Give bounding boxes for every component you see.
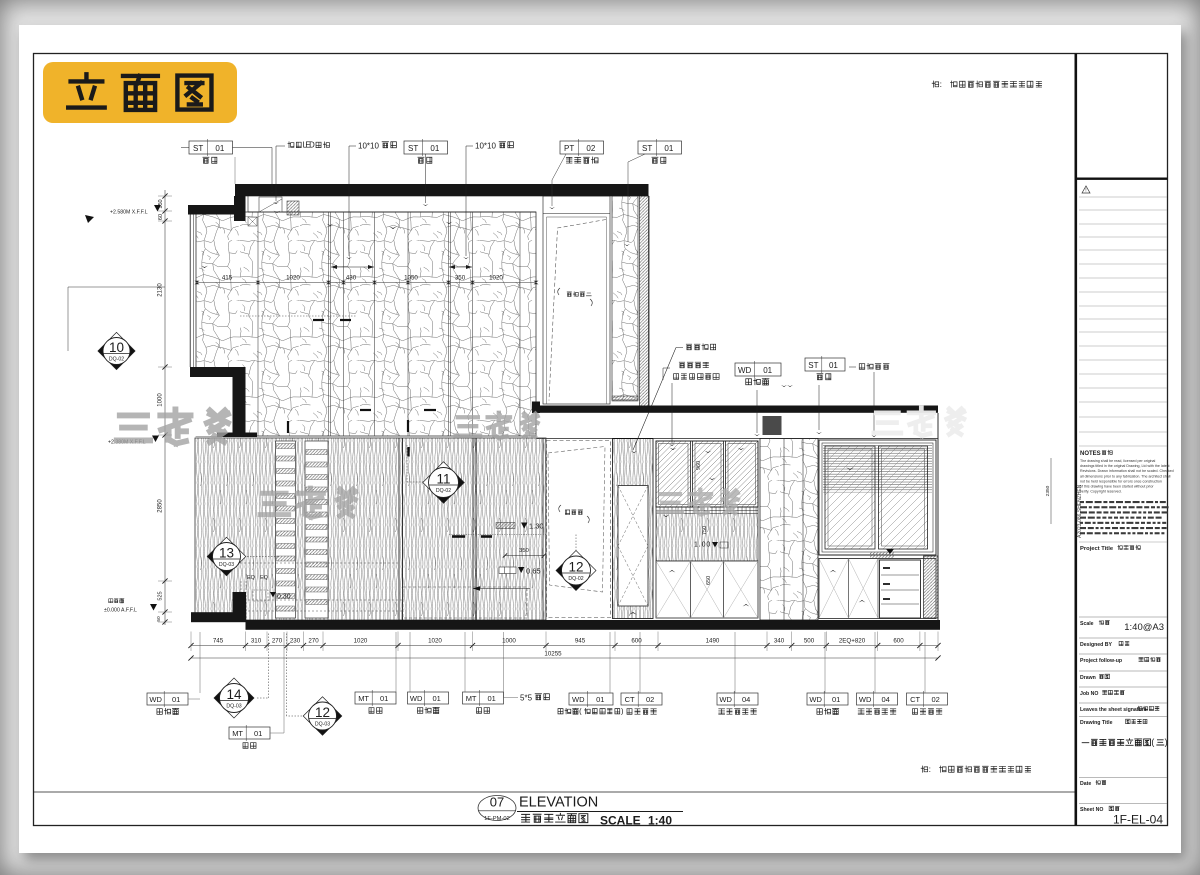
- svg-text:WD: WD: [738, 366, 752, 375]
- svg-text:+2.580M X.F.F.L: +2.580M X.F.F.L: [110, 210, 148, 216]
- svg-text:1490: 1490: [706, 638, 720, 645]
- svg-text:1:40@A3: 1:40@A3: [1124, 622, 1164, 633]
- svg-text:10*10: 10*10: [358, 142, 379, 151]
- svg-text:): ): [1165, 737, 1168, 747]
- svg-text:ST: ST: [642, 144, 652, 153]
- svg-text:SCALE: SCALE: [600, 814, 641, 828]
- svg-text:(: (: [1151, 737, 1154, 747]
- svg-text:ELEVATION: ELEVATION: [519, 795, 598, 811]
- svg-text:Scale: Scale: [1080, 621, 1094, 627]
- svg-text:0.30: 0.30: [277, 594, 291, 601]
- svg-text:10: 10: [109, 340, 124, 355]
- svg-text:01: 01: [832, 695, 840, 704]
- svg-text:1000: 1000: [158, 393, 164, 407]
- svg-text:01: 01: [432, 694, 440, 703]
- svg-text:430: 430: [346, 275, 357, 282]
- svg-text:745: 745: [213, 638, 224, 645]
- svg-text:WD: WD: [859, 695, 872, 704]
- svg-text:1F-PM-02: 1F-PM-02: [484, 816, 510, 822]
- svg-text:Job NO: Job NO: [1080, 691, 1098, 697]
- svg-text:Leaves the sheet signature: Leaves the sheet signature: [1080, 707, 1147, 713]
- svg-text:14: 14: [226, 687, 242, 702]
- svg-text:NOTES: NOTES: [1080, 451, 1101, 457]
- svg-text:1050: 1050: [404, 275, 418, 282]
- svg-text:2850: 2850: [158, 499, 164, 513]
- svg-text:verify. Copyright reserved.: verify. Copyright reserved.: [1080, 490, 1122, 494]
- svg-text:WD: WD: [410, 694, 423, 703]
- svg-text:1020: 1020: [286, 275, 300, 282]
- svg-text:WD: WD: [719, 695, 732, 704]
- svg-text:10255: 10255: [544, 651, 562, 658]
- svg-text:Revisions. Drawn information s: Revisions. Drawn information shall not b…: [1080, 469, 1174, 473]
- svg-text:12: 12: [315, 705, 330, 720]
- svg-text:600: 600: [893, 638, 904, 645]
- svg-text:270: 270: [308, 638, 319, 645]
- svg-text:1:40: 1:40: [648, 814, 672, 828]
- svg-text:0.65: 0.65: [526, 567, 541, 576]
- svg-text:10*10: 10*10: [475, 142, 496, 151]
- svg-text:!: !: [1085, 188, 1086, 194]
- svg-text:Sheet NO: Sheet NO: [1080, 807, 1103, 813]
- svg-text:DQ-03: DQ-03: [219, 562, 234, 568]
- svg-text:not be held responsible for er: not be held responsible for errors once …: [1080, 479, 1162, 483]
- svg-text:01: 01: [763, 366, 772, 375]
- svg-text:1020: 1020: [428, 638, 442, 645]
- svg-text:650: 650: [706, 576, 712, 585]
- svg-text:of this drawing have been star: of this drawing have been started withou…: [1080, 485, 1154, 489]
- svg-text:01: 01: [829, 361, 838, 370]
- svg-text:1.00: 1.00: [694, 542, 710, 549]
- svg-text:270: 270: [272, 638, 283, 645]
- svg-text:ST: ST: [193, 144, 203, 153]
- svg-text:all dimensions prior to any fa: all dimensions prior to any fabrication.…: [1080, 474, 1171, 478]
- svg-text:500: 500: [804, 638, 815, 645]
- svg-text:310: 310: [251, 638, 262, 645]
- svg-text:MT: MT: [232, 729, 243, 738]
- svg-text:The drawing shall be read, lic: The drawing shall be read, licensed per …: [1080, 459, 1156, 463]
- svg-text:340: 340: [774, 638, 785, 645]
- svg-text:600: 600: [631, 638, 642, 645]
- svg-text:02: 02: [931, 695, 939, 704]
- svg-text:MT: MT: [358, 694, 369, 703]
- svg-text:750: 750: [702, 526, 708, 535]
- svg-text:WD: WD: [572, 695, 585, 704]
- svg-text:Date: Date: [1080, 781, 1091, 787]
- svg-text::: :: [940, 79, 942, 89]
- svg-text:13: 13: [219, 546, 234, 561]
- svg-text:DQ-02: DQ-02: [568, 576, 583, 582]
- svg-text:drawings titled in the origina: drawings titled in the original Drawing,…: [1080, 464, 1170, 468]
- svg-text:07: 07: [490, 795, 504, 810]
- svg-text:Drawn: Drawn: [1080, 675, 1096, 681]
- svg-text:Project follow-up: Project follow-up: [1080, 658, 1122, 664]
- svg-text:EQ: EQ: [247, 575, 256, 581]
- svg-text:01: 01: [254, 729, 262, 738]
- svg-text:1F-EL-04: 1F-EL-04: [1113, 813, 1163, 827]
- svg-text:415: 415: [222, 275, 233, 282]
- svg-text:02: 02: [586, 144, 595, 153]
- svg-text:60: 60: [158, 214, 164, 220]
- svg-text:MT: MT: [466, 694, 477, 703]
- svg-text:1000: 1000: [502, 638, 516, 645]
- svg-text:LED: LED: [303, 140, 316, 149]
- svg-text:1020: 1020: [354, 638, 368, 645]
- svg-text:50: 50: [156, 616, 162, 622]
- svg-text:01: 01: [596, 695, 604, 704]
- svg-text:DQ-03: DQ-03: [315, 722, 330, 728]
- svg-text:1.30: 1.30: [529, 522, 544, 531]
- svg-text:01: 01: [430, 144, 439, 153]
- svg-text:ST: ST: [808, 361, 818, 370]
- svg-text:Drawing Title: Drawing Title: [1080, 720, 1113, 726]
- svg-text:01: 01: [664, 144, 673, 153]
- svg-text:WD: WD: [809, 695, 822, 704]
- svg-text:945: 945: [575, 638, 586, 645]
- svg-text:350: 350: [455, 275, 466, 282]
- svg-text:2350: 2350: [1045, 485, 1051, 496]
- svg-text:CT: CT: [625, 695, 635, 704]
- svg-text:5*5: 5*5: [520, 694, 533, 703]
- svg-text:04: 04: [881, 695, 889, 704]
- svg-text:01: 01: [380, 694, 388, 703]
- svg-text:DQ-02: DQ-02: [436, 488, 451, 494]
- svg-text:01: 01: [215, 144, 224, 153]
- svg-text:350: 350: [519, 548, 529, 554]
- svg-text:04: 04: [742, 695, 750, 704]
- svg-text:DQ-03: DQ-03: [226, 704, 241, 710]
- svg-text:2EQ+820: 2EQ+820: [839, 638, 866, 645]
- svg-text:960: 960: [696, 461, 702, 470]
- svg-text:DQ-02: DQ-02: [109, 357, 124, 363]
- svg-text:±0.000 A.F.F.L: ±0.000 A.F.F.L: [104, 608, 137, 614]
- svg-text:Designed BY: Designed BY: [1080, 642, 1113, 648]
- svg-text:11: 11: [436, 472, 450, 487]
- svg-text:Project Title: Project Title: [1080, 546, 1114, 552]
- svg-text:02: 02: [646, 695, 654, 704]
- svg-text::: :: [929, 764, 931, 774]
- svg-text:01: 01: [172, 695, 180, 704]
- svg-text:PT: PT: [564, 144, 574, 153]
- svg-text:2130: 2130: [158, 283, 164, 297]
- svg-text:CT: CT: [910, 695, 920, 704]
- svg-text:1020: 1020: [489, 275, 503, 282]
- svg-text:230: 230: [290, 638, 301, 645]
- svg-text:12: 12: [568, 560, 583, 575]
- svg-text:525: 525: [158, 591, 164, 600]
- svg-text:WD: WD: [149, 695, 162, 704]
- svg-text:EQ: EQ: [260, 575, 269, 581]
- svg-text:01: 01: [487, 694, 495, 703]
- svg-text:ST: ST: [408, 144, 418, 153]
